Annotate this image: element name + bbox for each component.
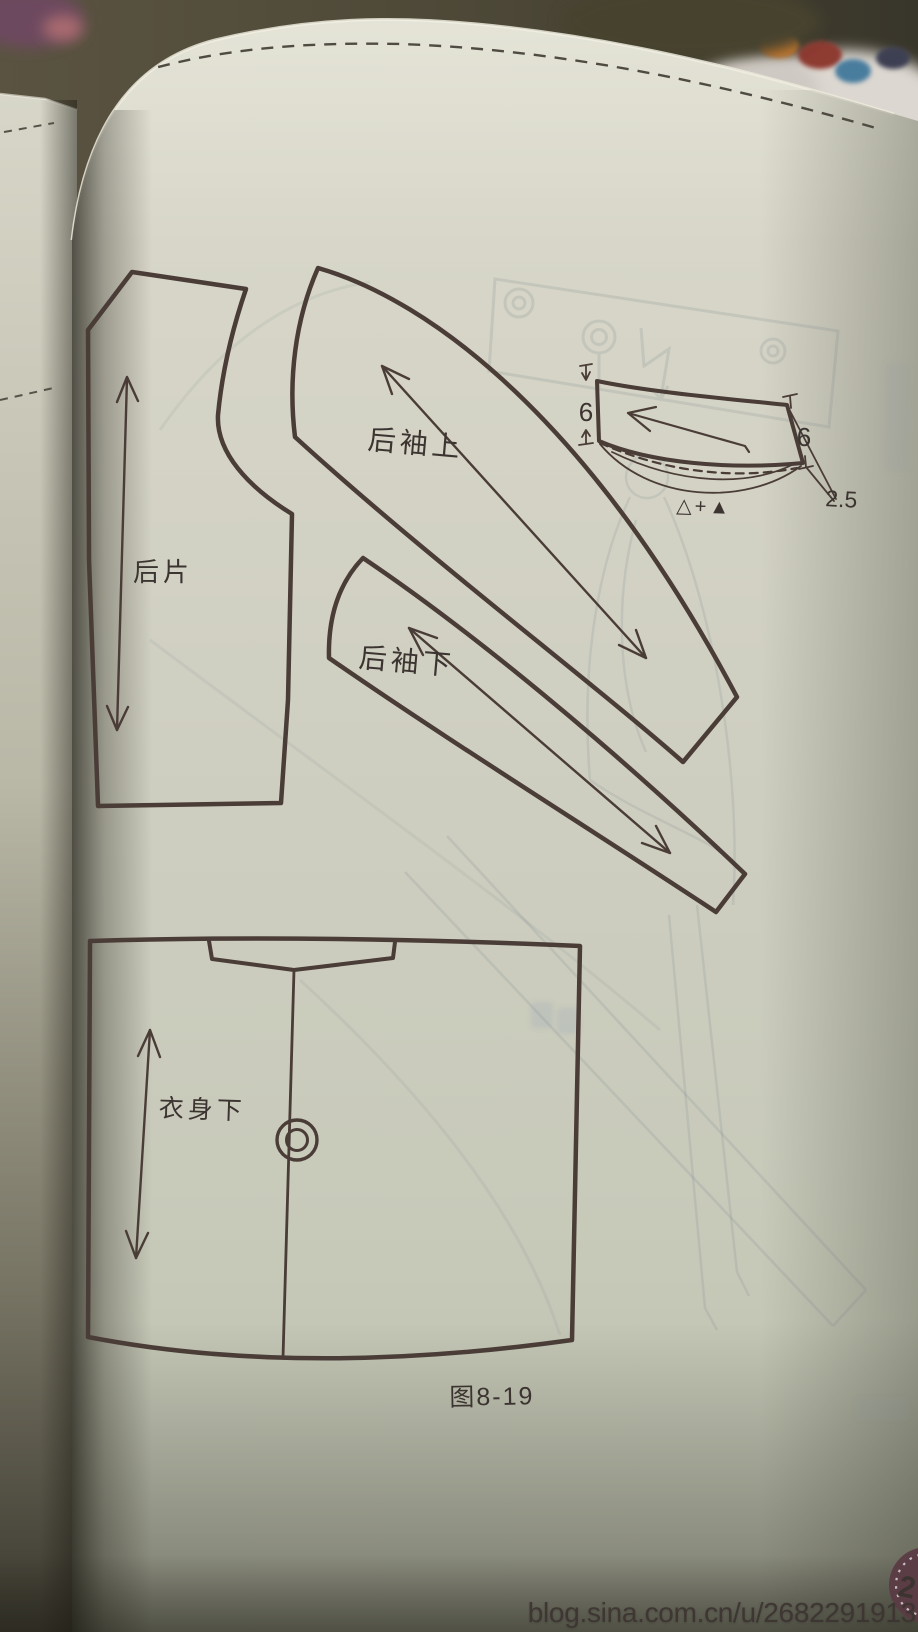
bead-red <box>798 41 842 69</box>
collar-formula-triangles: △+▲ <box>676 495 733 519</box>
label-back-piece: 后片 <box>133 557 193 587</box>
book-photo: 后片 后袖上 后袖下 衣身下 6 6 2.5 △+▲ 图8-19 2 blog.… <box>0 0 918 1632</box>
pink-object-blob <box>43 15 83 41</box>
label-body-lower: 衣身下 <box>158 1094 246 1125</box>
collar-dim-offset: 2.5 <box>825 485 858 513</box>
figure-caption: 图8-19 <box>449 1382 535 1411</box>
under-page-edge <box>0 94 77 1632</box>
book-photo-canvas: 后片 后袖上 后袖下 衣身下 6 6 2.5 △+▲ 图8-19 2 blog.… <box>0 0 918 1632</box>
collar-dim-right: 6 <box>797 422 811 452</box>
watermark-url: blog.sina.com.cn/u/2682291913 <box>528 1597 916 1628</box>
collar-dim-left: 6 <box>579 397 593 427</box>
bead-dark <box>876 47 910 69</box>
bead-blue <box>835 59 871 83</box>
